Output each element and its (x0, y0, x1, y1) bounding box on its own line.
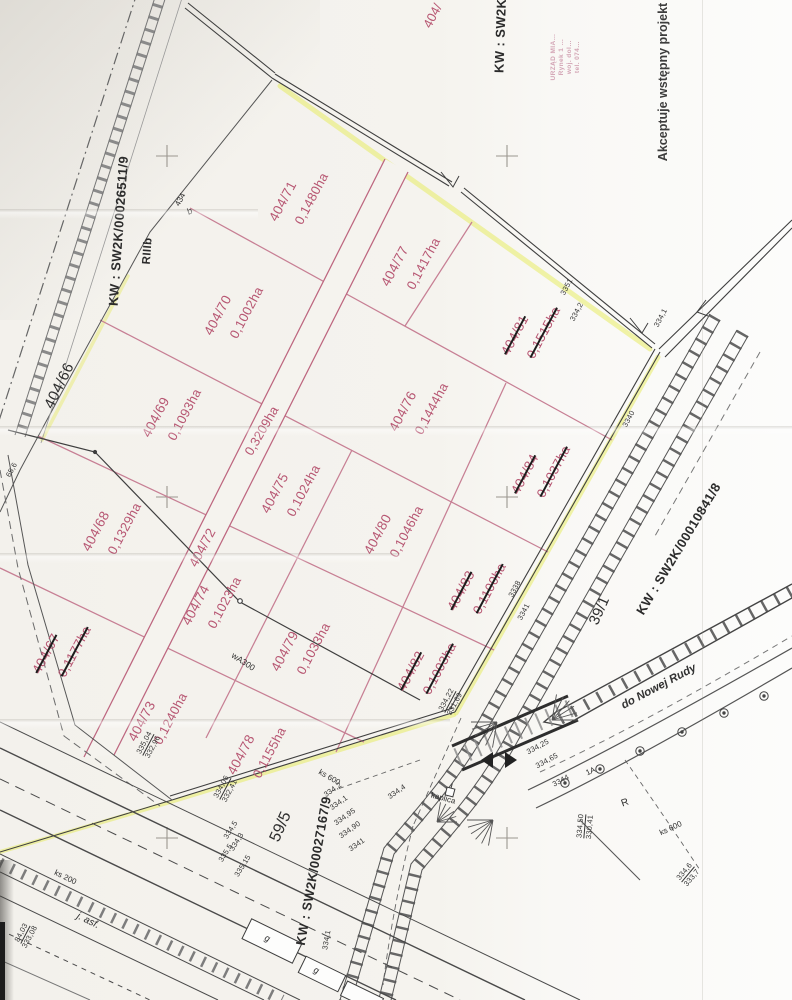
office-stamp: URZĄD MIA… Rynek 1 … woj. dol… tel. 074… (550, 34, 582, 81)
railway-topleft (0, 0, 183, 443)
paper-crease (0, 426, 792, 436)
stamp-line: Rynek 1 … (558, 34, 566, 81)
registration-crosses (156, 145, 518, 849)
scanned-map-page: KW : SW2K/00026511/9 RIIIb 404/66 KW : S… (0, 0, 792, 1000)
stamp-line: woj. dol… (566, 34, 574, 81)
scan-corner-edge (0, 922, 5, 1000)
paper-crease (0, 209, 258, 219)
soil-class-label: RIIIb (141, 237, 155, 265)
stamp-line: tel. 074… (574, 34, 582, 81)
stamp-line: URZĄD MIA… (550, 34, 558, 81)
paper-edge (702, 0, 703, 1000)
paper-crease (0, 553, 400, 563)
paper-crease (0, 719, 450, 729)
approval-note: Akceptuje wstępny projekt (657, 3, 671, 161)
